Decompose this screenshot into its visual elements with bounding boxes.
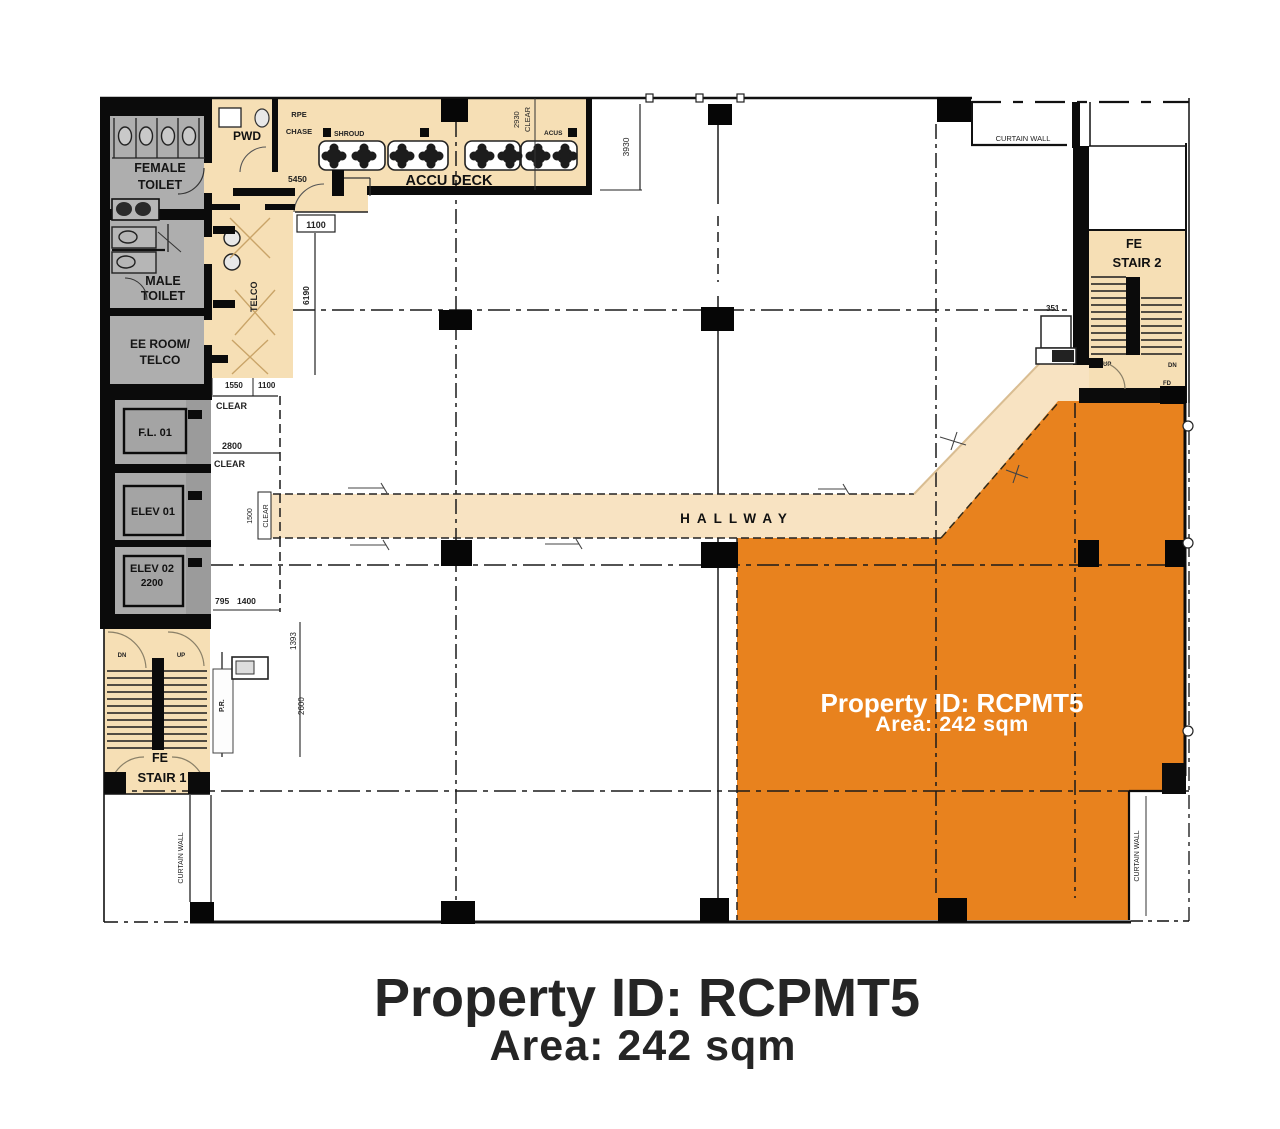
svg-text:CLEAR: CLEAR xyxy=(263,504,270,527)
svg-text:Area: 242 sqm: Area: 242 sqm xyxy=(490,1022,797,1070)
svg-text:UP: UP xyxy=(177,653,185,659)
svg-text:STAIR 1: STAIR 1 xyxy=(138,770,187,785)
svg-text:DN: DN xyxy=(118,653,127,659)
svg-text:CURTAIN WALL: CURTAIN WALL xyxy=(178,832,185,883)
svg-text:1393: 1393 xyxy=(289,632,298,650)
svg-text:TOILET: TOILET xyxy=(138,178,183,192)
svg-text:1500: 1500 xyxy=(247,508,254,524)
svg-text:ELEV 02: ELEV 02 xyxy=(130,563,174,575)
svg-text:P.R.: P.R. xyxy=(219,699,226,712)
svg-text:1100: 1100 xyxy=(258,381,276,390)
svg-text:ACUS: ACUS xyxy=(544,130,563,137)
svg-text:2200: 2200 xyxy=(141,578,164,589)
svg-text:ACCU DECK: ACCU DECK xyxy=(406,173,494,189)
svg-text:DN: DN xyxy=(1168,363,1177,369)
svg-text:1550: 1550 xyxy=(225,381,243,390)
svg-text:1100: 1100 xyxy=(306,220,326,230)
svg-text:CURTAIN WALL: CURTAIN WALL xyxy=(996,134,1051,143)
svg-text:1400: 1400 xyxy=(237,596,256,606)
svg-text:Property ID: RCPMT5: Property ID: RCPMT5 xyxy=(374,968,920,1028)
svg-text:MALE: MALE xyxy=(145,274,180,288)
svg-text:5450: 5450 xyxy=(288,174,307,184)
svg-text:EE ROOM/: EE ROOM/ xyxy=(130,337,191,351)
svg-text:FEMALE: FEMALE xyxy=(134,161,185,175)
svg-text:FE: FE xyxy=(152,751,168,765)
svg-text:ELEV 01: ELEV 01 xyxy=(131,506,175,518)
svg-text:HALLWAY: HALLWAY xyxy=(680,511,794,526)
svg-text:CLEAR: CLEAR xyxy=(523,106,532,132)
svg-text:TELCO: TELCO xyxy=(249,282,259,313)
svg-text:351: 351 xyxy=(1046,304,1060,313)
svg-text:STAIR 2: STAIR 2 xyxy=(1113,255,1162,270)
svg-text:CURTAIN WALL: CURTAIN WALL xyxy=(1134,830,1141,881)
svg-text:6190: 6190 xyxy=(301,286,311,305)
svg-text:795: 795 xyxy=(215,596,229,606)
svg-text:CHASE: CHASE xyxy=(286,127,312,136)
svg-text:Area: 242 sqm: Area: 242 sqm xyxy=(875,712,1029,736)
svg-text:TELCO: TELCO xyxy=(140,353,181,367)
svg-text:FD: FD xyxy=(1163,381,1172,387)
svg-text:3930: 3930 xyxy=(621,137,631,156)
svg-text:F.L. 01: F.L. 01 xyxy=(138,427,172,439)
svg-text:CLEAR: CLEAR xyxy=(216,401,247,411)
svg-text:CLEAR: CLEAR xyxy=(214,459,245,469)
svg-text:TOILET: TOILET xyxy=(141,289,186,303)
svg-text:RPE: RPE xyxy=(291,110,306,119)
svg-text:FE: FE xyxy=(1126,237,1142,251)
svg-text:SHROUD: SHROUD xyxy=(334,131,364,138)
svg-text:PWD: PWD xyxy=(233,129,261,143)
svg-text:2600: 2600 xyxy=(297,697,306,715)
svg-text:2930: 2930 xyxy=(512,111,521,128)
svg-text:2800: 2800 xyxy=(222,441,242,451)
